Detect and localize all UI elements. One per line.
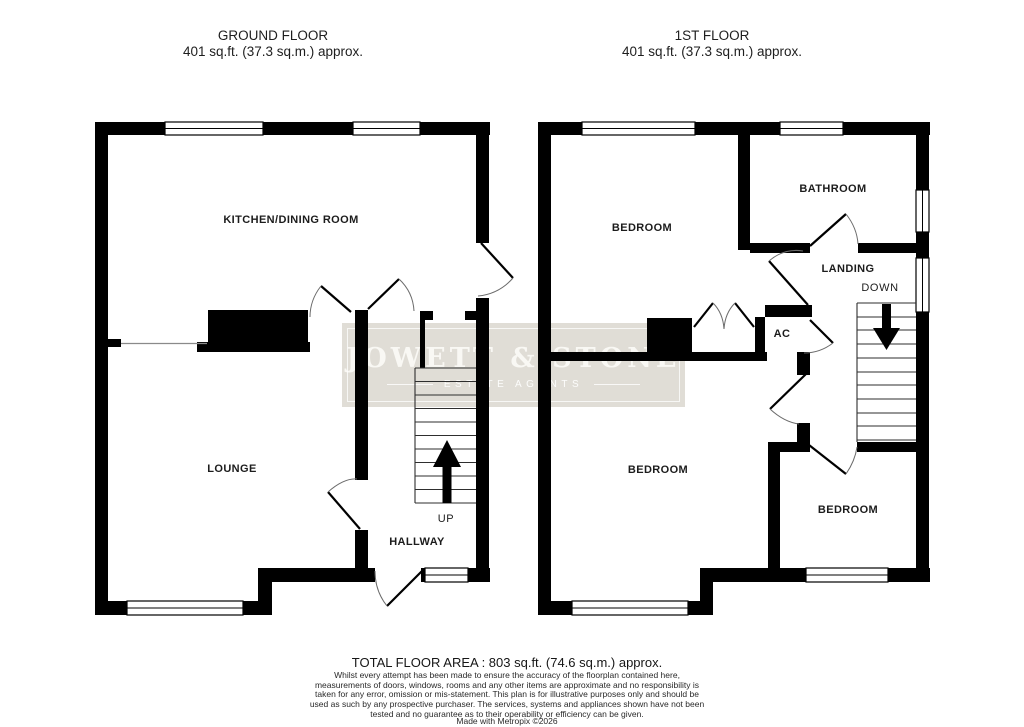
first-floor-walls [538, 122, 930, 615]
first-floor-area: 401 sq.ft. (37.3 sq.m.) approx. [622, 44, 802, 60]
down-arrow-icon [873, 304, 900, 350]
room-label-airing-cupboard: AC [774, 328, 791, 340]
bedroom-back-door-leaf [770, 374, 806, 409]
closet-door-left-leaf [694, 303, 713, 327]
floorplan-drawing [0, 0, 1024, 727]
bathroom-door-leaf [810, 214, 846, 246]
room-label-hallway: HALLWAY [389, 536, 445, 548]
room-label-bedroom-back: BEDROOM [628, 464, 688, 476]
first-floor-title: 1ST FLOOR 401 sq.ft. (37.3 sq.m.) approx… [622, 28, 802, 60]
ground-floor-name: GROUND FLOOR [183, 28, 363, 44]
bedroom-small-door-leaf [809, 445, 846, 474]
ac-door-leaf [810, 320, 833, 343]
stairs-up-label: UP [438, 513, 454, 525]
first-floor-windows [572, 122, 929, 615]
bedroom-front-door-leaf [769, 261, 808, 305]
kitchen-door-leaf [321, 286, 351, 312]
ground-floor-area: 401 sq.ft. (37.3 sq.m.) approx. [183, 44, 363, 60]
room-label-lounge: LOUNGE [207, 463, 256, 475]
first-floor-plan [538, 122, 930, 615]
ground-floor-title: GROUND FLOOR 401 sq.ft. (37.3 sq.m.) app… [183, 28, 363, 60]
side-door-leaf [481, 243, 513, 278]
room-label-kitchen-dining: KITCHEN/DINING ROOM [223, 214, 358, 226]
closet-door-right-leaf [735, 303, 754, 327]
room-label-bedroom-front: BEDROOM [612, 222, 672, 234]
total-floor-area: TOTAL FLOOR AREA : 803 sq.ft. (74.6 sq.m… [352, 655, 662, 670]
room-label-bathroom: BATHROOM [799, 183, 866, 195]
disclaimer-text: Whilst every attempt has been made to en… [305, 671, 709, 720]
front-door-leaf [387, 571, 422, 606]
room-label-bedroom-small: BEDROOM [818, 504, 878, 516]
kitchen-hall-door-leaf [368, 279, 399, 309]
ground-floor-plan [95, 122, 513, 615]
lounge-door-leaf [328, 492, 360, 529]
stairs-down-label: DOWN [861, 282, 898, 294]
floorplan-page: GROUND FLOOR 401 sq.ft. (37.3 sq.m.) app… [0, 0, 1024, 727]
first-floor-name: 1ST FLOOR [622, 28, 802, 44]
metropix-credit: Made with Metropix ©2026 [456, 716, 557, 726]
room-label-landing: LANDING [822, 263, 875, 275]
